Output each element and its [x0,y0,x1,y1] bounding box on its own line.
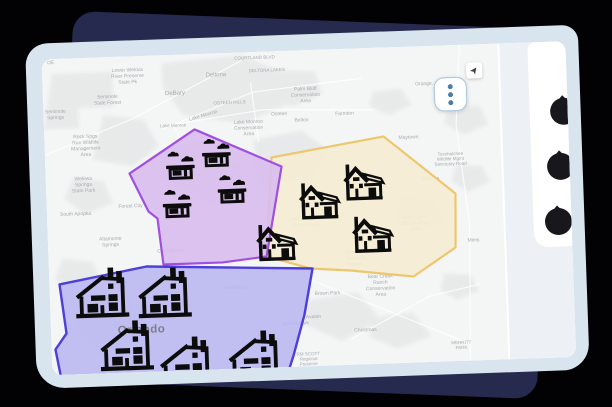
svg-text:Area: Area [300,98,311,104]
svg-text:Deltona: Deltona [205,71,227,78]
svg-text:Orange...: Orange... [414,80,435,87]
svg-text:Springs: Springs [101,241,119,248]
svg-text:Christmas: Christmas [354,326,377,333]
svg-text:South Apopka: South Apopka [59,210,91,217]
svg-text:Brown Park: Brown Park [314,290,341,297]
svg-text:Forest City: Forest City [118,202,143,209]
svg-text:Area: Area [80,151,91,157]
svg-text:Maytown: Maytown [398,134,418,141]
svg-text:DeBary: DeBary [164,90,184,97]
svg-text:Mims: Mims [467,237,480,243]
svg-text:Area: Area [375,291,386,297]
svg-text:PARK: PARK [455,344,467,349]
svg-text:Avalon: Avalon [305,313,321,320]
svg-text:State Pk: State Pk [118,79,138,86]
svg-text:Preserve: Preserve [299,360,318,366]
svg-text:Lake Monroe: Lake Monroe [159,122,186,128]
svg-text:COURTLAND BLVD: COURTLAND BLVD [234,54,275,60]
svg-text:State Forest: State Forest [93,99,121,106]
svg-text:OE: OE [46,59,54,65]
svg-text:Osteen: Osteen [271,110,288,117]
svg-text:Farmton: Farmton [335,110,354,117]
svg-text:Area: Area [243,131,254,137]
svg-text:Springs: Springs [47,114,65,121]
svg-text:State Park: State Park [71,187,95,194]
svg-text:Bolton: Bolton [294,117,309,123]
